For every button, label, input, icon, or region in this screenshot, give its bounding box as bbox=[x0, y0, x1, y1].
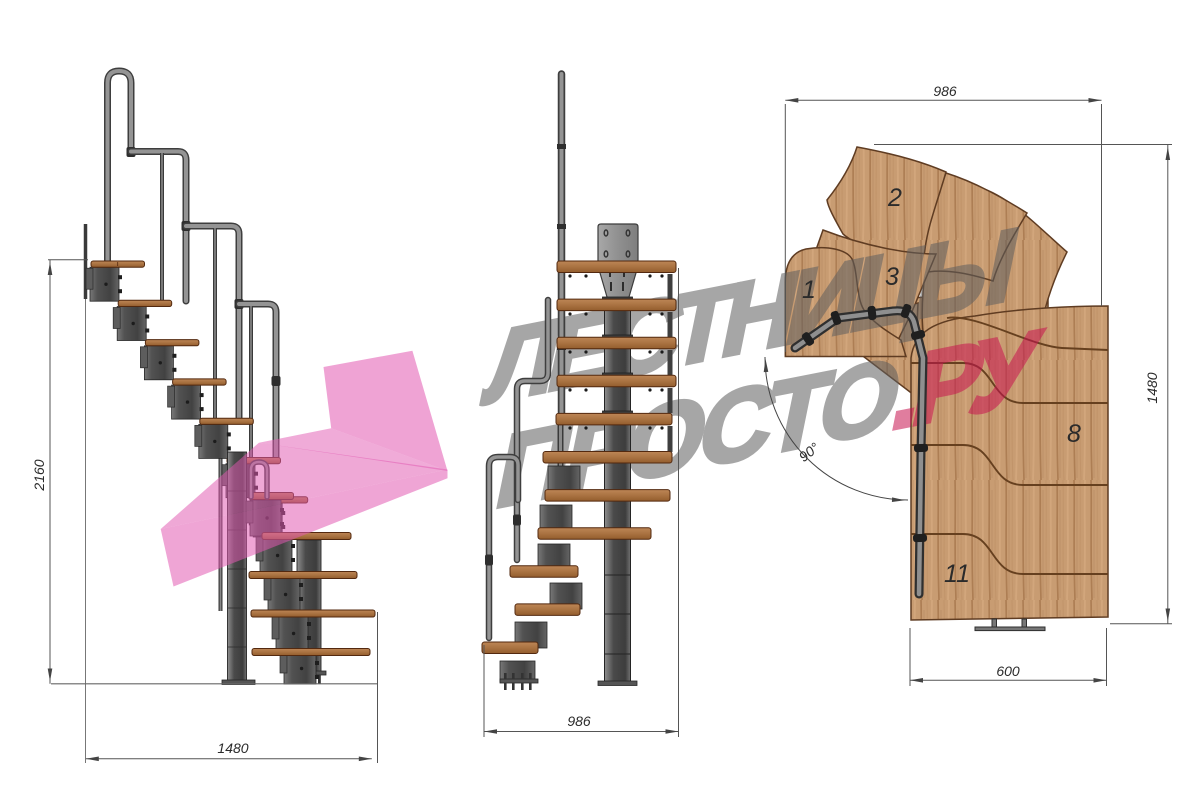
svg-text:986: 986 bbox=[933, 83, 957, 99]
svg-text:3: 3 bbox=[885, 263, 899, 291]
svg-text:600: 600 bbox=[996, 663, 1020, 679]
svg-text:1480: 1480 bbox=[217, 740, 248, 756]
svg-text:8: 8 bbox=[1067, 420, 1081, 448]
svg-text:2: 2 bbox=[887, 184, 902, 212]
svg-text:2160: 2160 bbox=[31, 459, 47, 491]
svg-text:986: 986 bbox=[567, 713, 591, 729]
svg-text:11: 11 bbox=[944, 560, 970, 588]
svg-text:1: 1 bbox=[802, 276, 816, 304]
svg-text:1480: 1480 bbox=[1144, 372, 1160, 403]
